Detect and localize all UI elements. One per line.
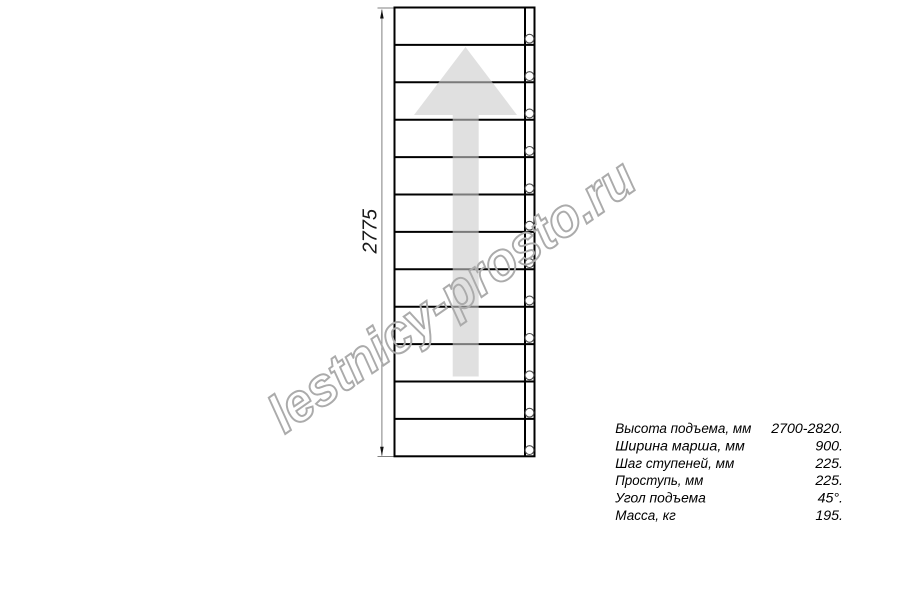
svg-text:195.: 195.	[815, 508, 843, 524]
svg-text:lestnicy-prosto.ru: lestnicy-prosto.ru	[257, 147, 646, 444]
svg-text:Угол подъема: Угол подъема	[614, 491, 706, 507]
svg-text:900.: 900.	[815, 438, 843, 454]
svg-text:2775: 2775	[360, 208, 382, 254]
svg-text:Высота подъема, мм: Высота подъема, мм	[615, 421, 751, 437]
svg-text:Проступь, мм: Проступь, мм	[615, 473, 703, 489]
svg-text:Масса, кг: Масса, кг	[615, 508, 676, 524]
svg-text:Шаг ступеней, мм: Шаг ступеней, мм	[615, 456, 734, 472]
svg-text:225.: 225.	[814, 473, 843, 489]
svg-text:225.: 225.	[814, 456, 843, 472]
svg-text:45°.: 45°.	[818, 491, 843, 507]
svg-text:Ширина марша, мм: Ширина марша, мм	[615, 438, 745, 454]
svg-text:2700-2820.: 2700-2820.	[770, 421, 843, 437]
